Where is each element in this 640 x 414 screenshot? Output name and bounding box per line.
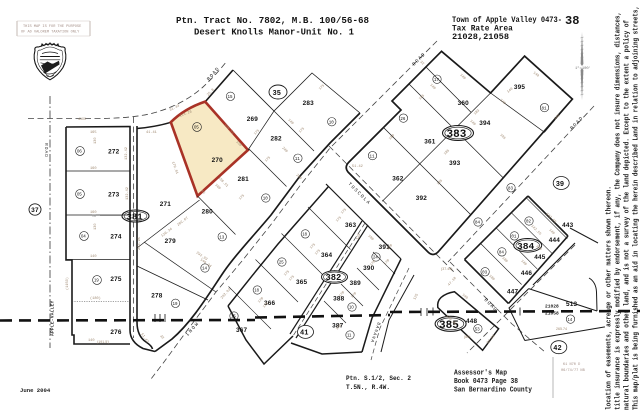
svg-text:18: 18: [302, 232, 307, 237]
svg-text:365: 365: [296, 279, 308, 286]
svg-text:14: 14: [568, 317, 573, 322]
svg-text:273: 273: [108, 192, 120, 199]
svg-text:Ptn. S.1/2, Sec. 2: Ptn. S.1/2, Sec. 2: [346, 375, 411, 382]
svg-text:10: 10: [329, 121, 335, 125]
svg-text:395: 395: [514, 84, 526, 91]
svg-text:392: 392: [416, 195, 428, 202]
svg-text:Assessor's Map: Assessor's Map: [454, 370, 507, 378]
svg-text:11: 11: [295, 158, 301, 162]
svg-text:APPLE-VALLEY: APPLE-VALLEY: [50, 300, 56, 336]
svg-text:271: 271: [160, 201, 172, 208]
svg-text:(1150): (1150): [65, 277, 70, 290]
svg-text:(191.5'): (191.5'): [97, 340, 109, 344]
svg-text:447: 447: [507, 289, 519, 296]
svg-text:June 2004: June 2004: [20, 387, 51, 394]
svg-text:362: 362: [392, 175, 404, 182]
svg-text:513: 513: [566, 301, 578, 308]
svg-text:11: 11: [347, 333, 352, 338]
svg-text:02: 02: [526, 221, 532, 225]
svg-text:05: 05: [194, 125, 199, 130]
svg-text:(180): (180): [90, 296, 101, 301]
svg-text:360: 360: [458, 100, 470, 107]
svg-text:83: 83: [508, 188, 514, 192]
svg-text:04: 04: [81, 234, 86, 239]
svg-text:363: 363: [345, 222, 357, 229]
svg-text:364: 364: [321, 252, 333, 259]
svg-text:382: 382: [326, 273, 342, 283]
svg-text:274: 274: [110, 233, 122, 240]
svg-text:25: 25: [279, 260, 284, 265]
svg-text:132.42: 132.42: [126, 187, 130, 200]
svg-text:title insurance is expressly m: title insurance is expressly modified by…: [615, 12, 623, 410]
svg-text:T.5N., R.4W.: T.5N., R.4W.: [346, 384, 390, 391]
svg-text:160: 160: [90, 211, 96, 215]
svg-text:Town of Apple Valley 0473-: Town of Apple Valley 0473-: [452, 17, 562, 25]
svg-text:11: 11: [370, 155, 376, 159]
svg-text:Desert Knolls Manor-Unit No. 1: Desert Knolls Manor-Unit No. 1: [194, 27, 354, 38]
svg-text:18: 18: [254, 288, 259, 293]
svg-text:269: 269: [247, 116, 259, 123]
svg-text:41: 41: [300, 330, 308, 338]
svg-text:13: 13: [219, 236, 225, 240]
svg-text:10: 10: [263, 198, 269, 202]
svg-text:06: 06: [77, 149, 82, 154]
svg-text:21028: 21028: [545, 304, 559, 310]
svg-text:41.41: 41.41: [146, 131, 157, 135]
svg-text:This map/plat is being furnish: This map/plat is being furnished as an a…: [633, 6, 640, 410]
svg-text:MB: MB: [92, 215, 96, 219]
svg-text:443: 443: [562, 222, 574, 229]
svg-text:361: 361: [424, 138, 436, 145]
svg-text:393: 393: [449, 160, 461, 167]
svg-text:26: 26: [400, 118, 406, 122]
svg-text:THIS MAP IS FOR THE PURPOSE: THIS MAP IS FOR THE PURPOSE: [23, 25, 81, 29]
svg-text:Book 0473 Page 38: Book 0473 Page 38: [454, 378, 518, 386]
svg-text:42: 42: [553, 345, 561, 353]
svg-text:53: 53: [475, 327, 480, 332]
svg-text:283: 283: [303, 100, 315, 107]
svg-text:140: 140: [88, 339, 94, 343]
svg-text:233.95: 233.95: [138, 237, 142, 250]
svg-text:06/74/77 NB: 06/74/77 NB: [561, 368, 586, 373]
svg-text:location of easements, acreage: location of easements, acreage or other …: [606, 186, 614, 410]
svg-text:39: 39: [556, 181, 564, 189]
svg-text:383: 383: [447, 129, 467, 141]
svg-text:381: 381: [127, 213, 144, 223]
svg-text:132.42: 132.42: [125, 147, 129, 160]
svg-text:165: 165: [90, 131, 96, 135]
svg-text:Ptn. Tract No. 7802, M.B. 100/: Ptn. Tract No. 7802, M.B. 100/56-68: [176, 15, 369, 26]
svg-text:270: 270: [212, 157, 224, 164]
svg-text:natural boundaries and other l: natural boundaries and other land, and i…: [624, 20, 632, 410]
svg-text:K1 N70 D: K1 N70 D: [563, 363, 580, 367]
svg-text:281: 281: [238, 176, 250, 183]
svg-text:(80): (80): [464, 335, 470, 339]
svg-text:367: 367: [236, 327, 248, 334]
svg-text:01: 01: [511, 236, 517, 240]
svg-text:1"=100': 1"=100': [575, 66, 591, 71]
svg-text:51.42: 51.42: [352, 165, 363, 169]
svg-text:446: 446: [521, 270, 533, 277]
svg-text:81: 81: [542, 107, 548, 111]
svg-text:10: 10: [349, 305, 354, 310]
svg-text:280: 280: [202, 209, 214, 216]
svg-text:445: 445: [534, 254, 546, 261]
svg-text:140: 140: [90, 255, 96, 259]
svg-text:279: 279: [165, 238, 177, 245]
svg-text:05: 05: [77, 192, 82, 197]
svg-text:14: 14: [202, 268, 208, 272]
svg-text:24: 24: [373, 255, 378, 260]
svg-text:278: 278: [151, 293, 163, 300]
svg-text:38: 38: [565, 14, 579, 28]
svg-text:265.74: 265.74: [556, 327, 567, 331]
svg-text:272: 272: [108, 149, 120, 156]
svg-text:84: 84: [475, 222, 481, 226]
svg-text:San Bernardino County: San Bernardino County: [454, 387, 533, 395]
svg-text:130: 130: [94, 138, 98, 144]
svg-text:19: 19: [173, 303, 179, 307]
svg-text:448: 448: [466, 318, 478, 325]
svg-text:444: 444: [549, 237, 561, 244]
svg-text:35: 35: [273, 90, 281, 98]
svg-text:4100: 4100: [78, 117, 86, 121]
svg-text:17: 17: [434, 79, 440, 83]
svg-text:ROAD: ROAD: [43, 143, 49, 158]
svg-text:19: 19: [94, 278, 99, 283]
svg-text:21028,21058: 21028,21058: [452, 34, 509, 42]
svg-text:394: 394: [479, 120, 491, 127]
svg-text:160: 160: [90, 167, 96, 171]
svg-text:276: 276: [110, 329, 122, 336]
svg-text:(37.44): (37.44): [441, 267, 452, 271]
svg-text:15: 15: [228, 96, 234, 100]
svg-text:282: 282: [271, 136, 283, 143]
svg-text:OF AD VALOREM TAXATION ONLY: OF AD VALOREM TAXATION ONLY: [21, 31, 80, 35]
svg-text:04: 04: [499, 252, 505, 256]
svg-text:37: 37: [31, 207, 39, 214]
svg-text:Tax Rate Area: Tax Rate Area: [452, 26, 513, 34]
svg-text:130: 130: [94, 224, 98, 230]
svg-text:389: 389: [350, 280, 362, 287]
svg-text:15: 15: [231, 314, 236, 319]
svg-text:275: 275: [110, 276, 122, 283]
svg-text:384: 384: [517, 241, 535, 252]
svg-text:03: 03: [482, 272, 488, 276]
